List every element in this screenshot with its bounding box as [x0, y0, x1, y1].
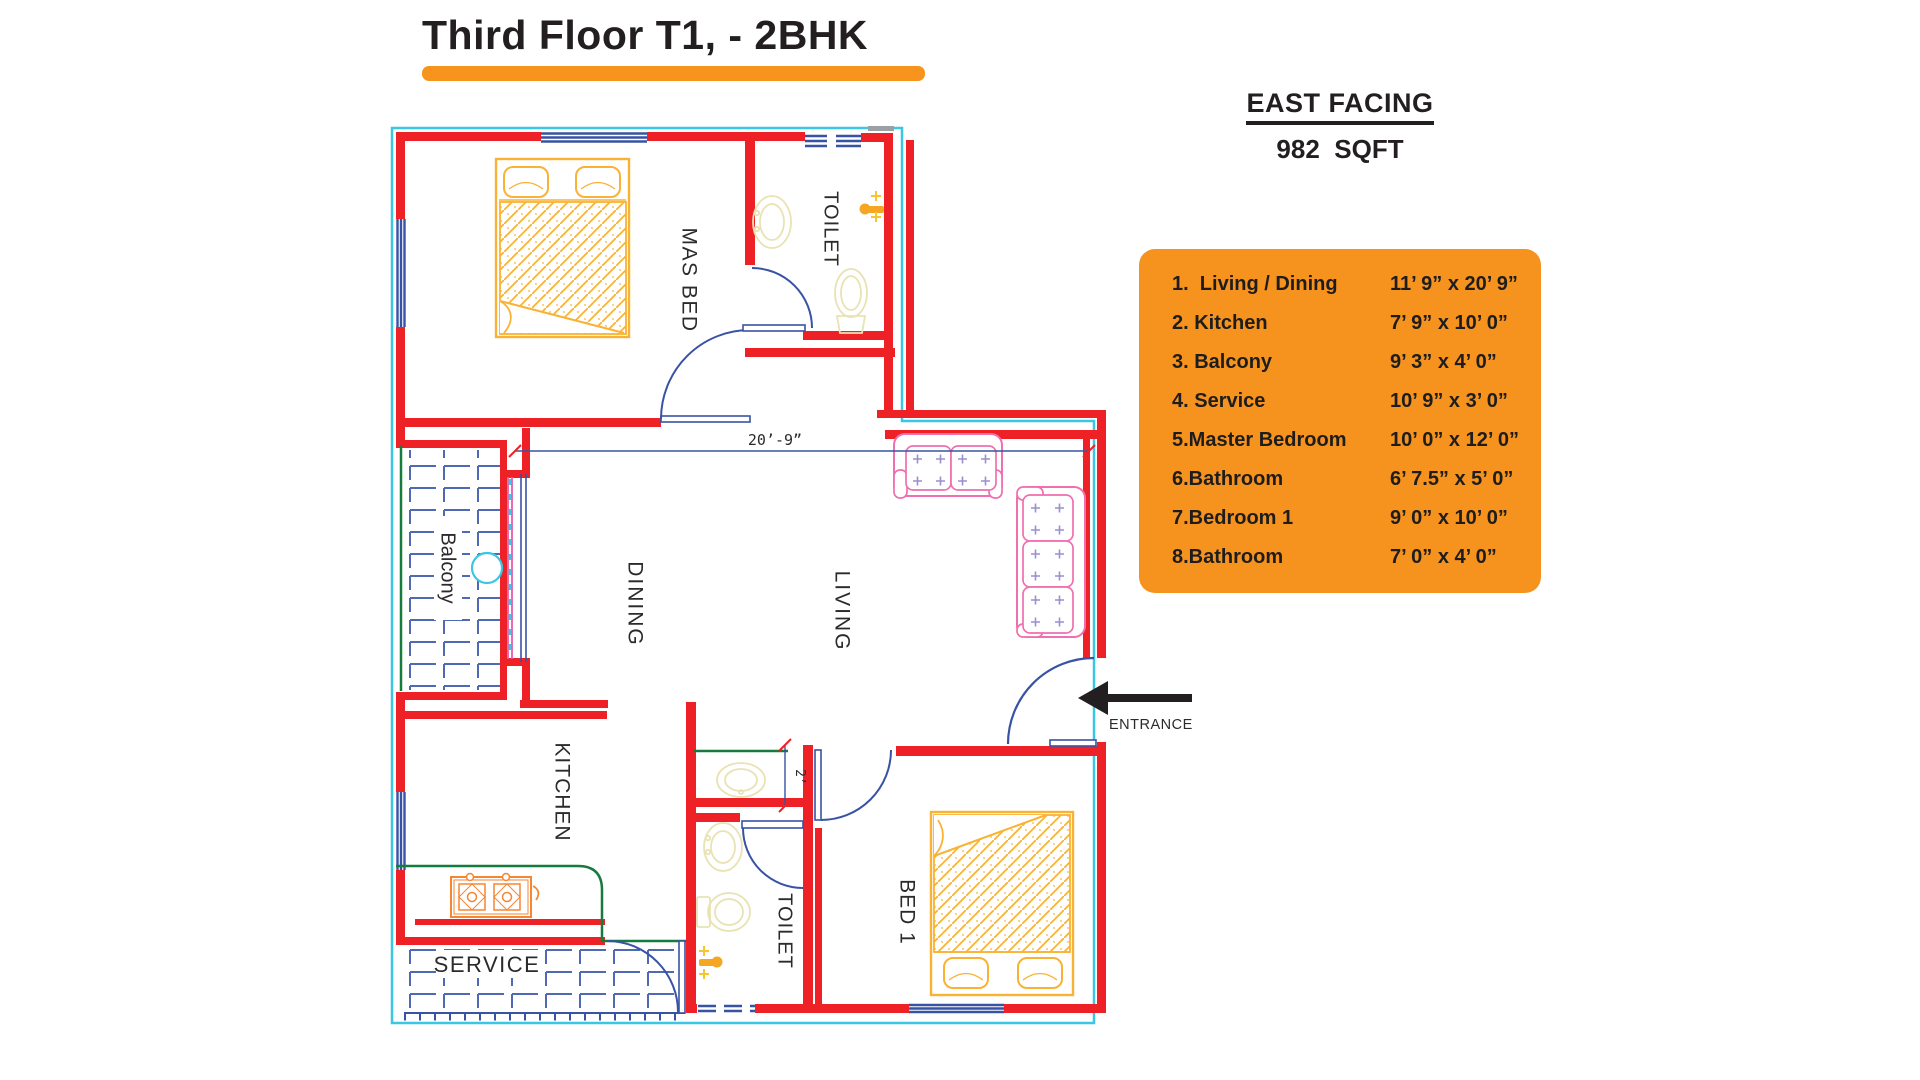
door-masterbed	[661, 330, 750, 422]
bed1-icon	[931, 812, 1073, 995]
room-label-living: LIVING	[830, 571, 853, 652]
loveseat-icon	[894, 434, 1002, 498]
balcony-area	[401, 446, 526, 691]
room-label-kitchen: KITCHEN	[550, 742, 573, 841]
washbasin-icon	[753, 196, 791, 248]
window-kitchen-left	[398, 792, 405, 870]
dimension-label: 20’-9”	[748, 431, 802, 449]
sofa-icon	[1017, 487, 1085, 637]
room-label-dining: DINING	[623, 561, 646, 647]
room-label-master-bed: MAS BED	[677, 227, 700, 332]
room-label-bed1: BED 1	[895, 879, 918, 945]
wc-icon	[697, 893, 750, 931]
door-toilet-bottom	[742, 821, 803, 888]
toilet-bottom-fixtures	[697, 823, 750, 931]
boundary-gray-dash	[868, 126, 894, 131]
window-toilet-top	[805, 136, 861, 146]
balcony-sliding-door	[508, 474, 526, 662]
wc-icon	[835, 269, 867, 333]
faucet-top-icon	[860, 191, 885, 222]
balcony-drain-icon	[472, 553, 502, 583]
room-label-toilet-top: TOILET	[820, 191, 842, 267]
floor-plan: 20’-9” 2’ ENTRANCE MAS BED TOILET Balcon…	[0, 0, 1920, 1080]
room-label-balcony: Balcony	[437, 532, 459, 603]
stove-icon	[451, 874, 538, 918]
door-toilet-top	[743, 268, 812, 331]
dimension-label: 2’	[792, 769, 807, 785]
master-bed-icon	[496, 159, 629, 337]
room-label-toilet-bottom: TOILET	[774, 893, 796, 969]
floorplan-page: Third Floor T1, - 2BHK EAST FACING 982 S…	[0, 0, 1920, 1080]
room-label-service: SERVICE	[434, 952, 541, 977]
door-entrance	[1008, 658, 1096, 746]
window-masterbed-left	[398, 219, 405, 327]
washbasin-icon	[704, 823, 742, 871]
window-toilet-bottom	[698, 1006, 755, 1011]
niche-basin-icon	[717, 763, 765, 797]
window-masterbed-top	[541, 134, 647, 142]
faucet-bottom-icon	[699, 946, 723, 979]
entrance-label: ENTRANCE	[1109, 717, 1193, 733]
door-bed1	[815, 750, 891, 820]
window-bed1-bottom	[909, 1005, 1004, 1012]
